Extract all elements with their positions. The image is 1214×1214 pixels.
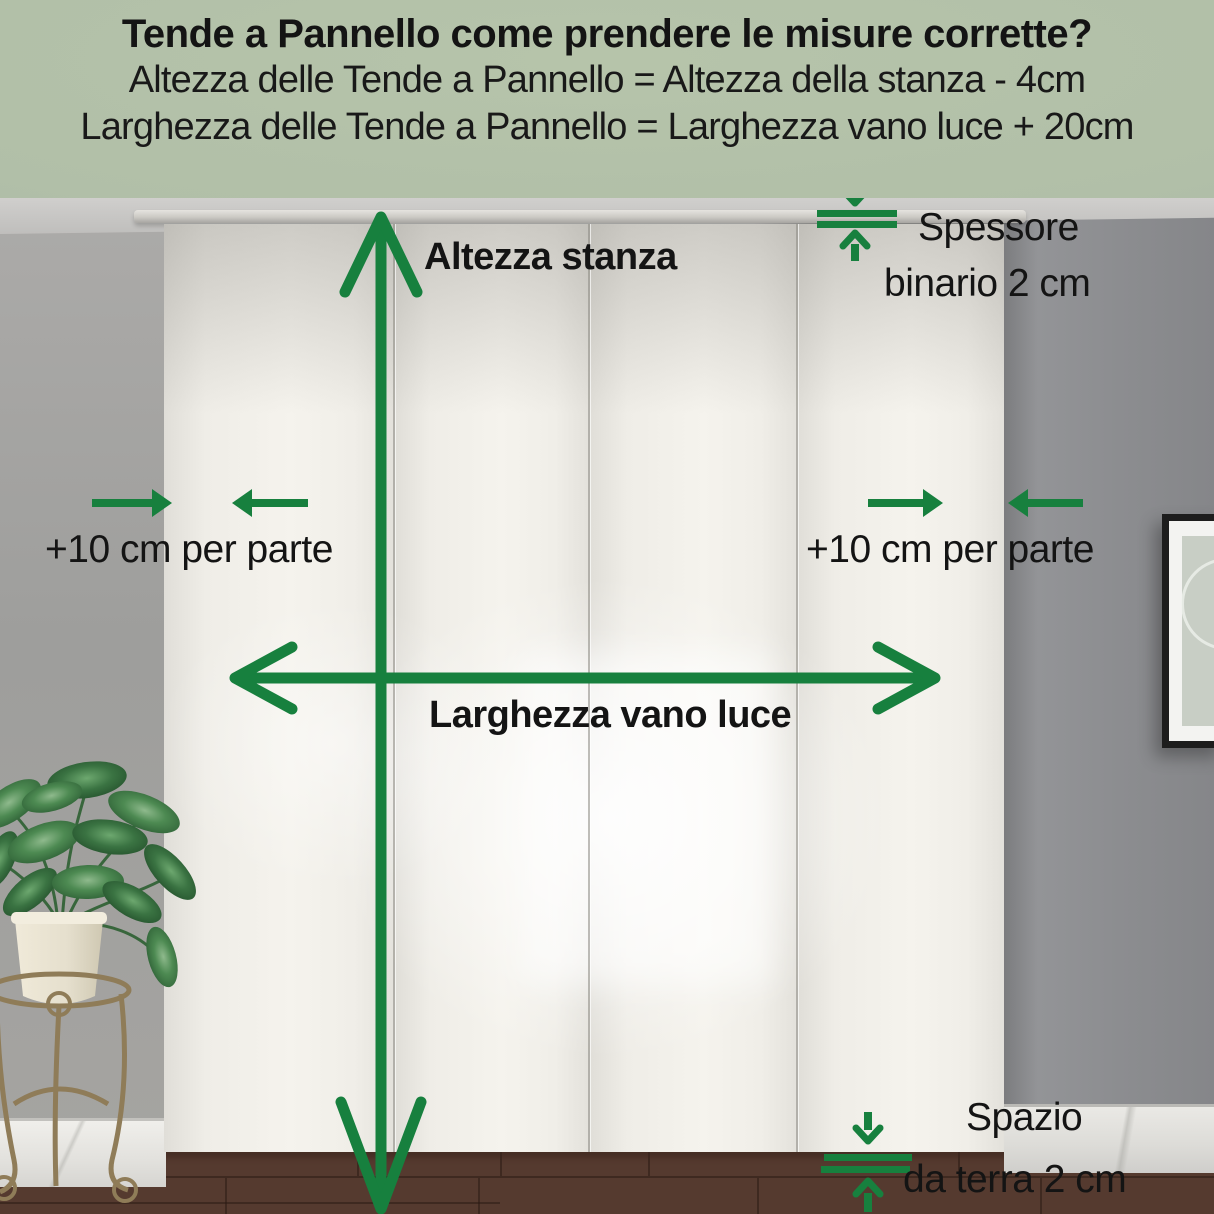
potted-plant [0,742,222,1214]
floor-gap-label-line2: da terra 2 cm [903,1158,1126,1202]
track-thickness-label-line1: Spessore [918,206,1079,250]
panel-seam [393,224,395,1152]
side-allowance-left-label: +10 cm per parte [45,528,333,572]
panel-curtains [164,224,1004,1152]
page-title: Tende a Pannello come prendere le misure… [122,12,1092,57]
formula-height: Altezza delle Tende a Pannello = Altezza… [129,57,1086,104]
panel-seam [796,224,798,1152]
plant-stand [0,974,136,1201]
curtain-rail [134,210,1026,223]
picture-frame [1162,514,1214,748]
header-banner: Tende a Pannello come prendere le misure… [0,0,1214,198]
side-allowance-right-label: +10 cm per parte [806,528,1094,572]
formula-width: Larghezza delle Tende a Pannello = Largh… [80,104,1133,151]
infographic-root: Tende a Pannello come prendere le misure… [0,0,1214,1214]
opening-width-label: Larghezza vano luce [429,694,791,737]
panel-seam [588,224,590,1152]
plant-pot [11,912,107,1004]
picture-art [1182,536,1214,726]
curtain-glow [164,224,1004,1152]
floor-gap-label-line1: Spazio [966,1096,1082,1140]
room-height-label: Altezza stanza [424,236,677,279]
track-thickness-label-line2: binario 2 cm [884,262,1090,306]
